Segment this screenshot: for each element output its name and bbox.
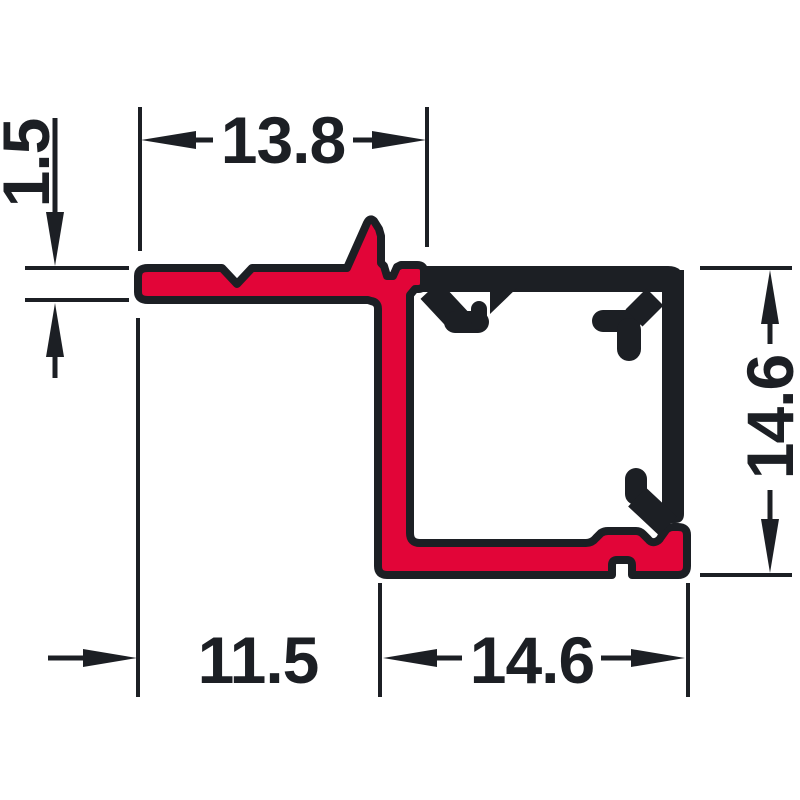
arrowhead-down — [46, 212, 64, 266]
profile-drawing: 13.8 1.5 14.6 11.5 14.6 — [0, 0, 800, 800]
dim-arm-thickness: 1.5 — [0, 118, 129, 378]
dim-label-bottom-right-width: 14.6 — [470, 623, 594, 697]
arrowhead-up — [46, 303, 64, 357]
arrowhead-left — [383, 649, 437, 667]
arrowhead-right — [631, 649, 685, 667]
black-frame-profile — [423, 266, 684, 526]
arrowhead-right — [372, 131, 426, 149]
dim-top-width: 13.8 — [140, 103, 427, 251]
frame-top-bar — [423, 266, 684, 292]
dim-label-top-width: 13.8 — [221, 103, 345, 177]
frame-hook-top-right-band — [634, 297, 655, 318]
arrowhead-down — [761, 519, 779, 573]
arrowhead-right — [83, 649, 137, 667]
drawing-canvas: 13.8 1.5 14.6 11.5 14.6 — [0, 0, 800, 800]
dim-frame-height: 14.6 — [700, 268, 800, 575]
frame-right-bar — [662, 270, 684, 523]
dim-label-frame-height: 14.6 — [733, 355, 800, 479]
arrowhead-left — [141, 131, 196, 149]
arrowhead-up — [761, 270, 779, 324]
dim-label-arm-thickness: 1.5 — [0, 119, 63, 208]
dim-bottom: 11.5 14.6 — [48, 318, 688, 697]
dim-label-bottom-left-width: 11.5 — [198, 623, 319, 697]
